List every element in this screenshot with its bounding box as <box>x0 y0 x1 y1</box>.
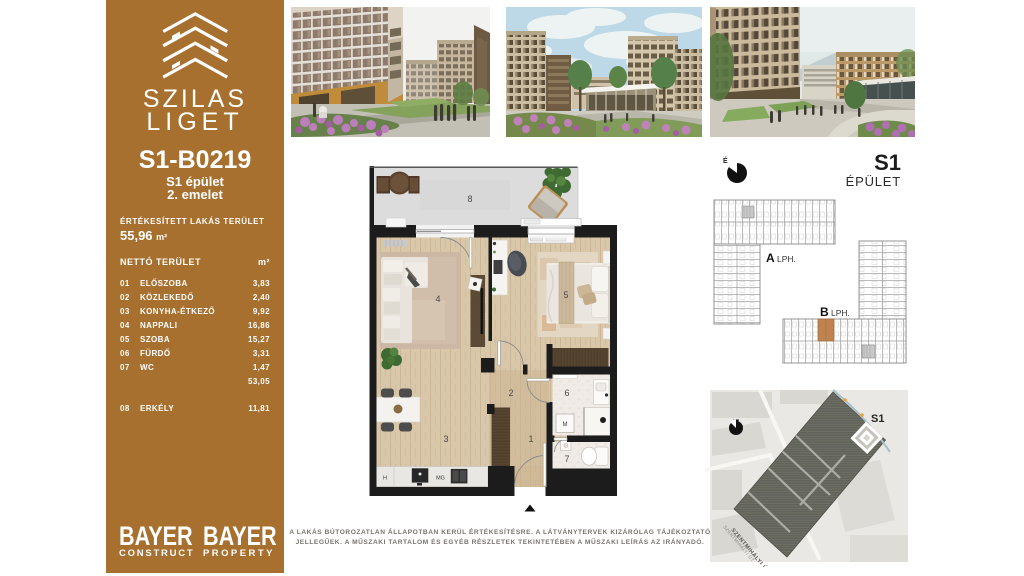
svg-text:5: 5 <box>563 290 568 300</box>
svg-text:S1: S1 <box>874 150 901 175</box>
svg-text:LPH.: LPH. <box>831 308 850 318</box>
svg-text:7: 7 <box>564 454 569 464</box>
svg-text:3: 3 <box>443 434 448 444</box>
svg-text:B: B <box>820 305 829 319</box>
svg-text:S1: S1 <box>871 413 884 425</box>
svg-text:MG: MG <box>436 476 445 482</box>
svg-text:É: É <box>723 156 728 165</box>
svg-text:A: A <box>766 251 775 265</box>
svg-text:2: 2 <box>508 388 513 398</box>
svg-text:M: M <box>563 422 568 428</box>
svg-text:6: 6 <box>564 388 569 398</box>
svg-text:LPH.: LPH. <box>777 254 796 264</box>
svg-text:4: 4 <box>435 294 440 304</box>
svg-text:ÉPÜLET: ÉPÜLET <box>846 174 901 189</box>
svg-text:1: 1 <box>528 434 533 444</box>
svg-text:8: 8 <box>467 194 472 204</box>
svg-text:H: H <box>383 476 387 482</box>
